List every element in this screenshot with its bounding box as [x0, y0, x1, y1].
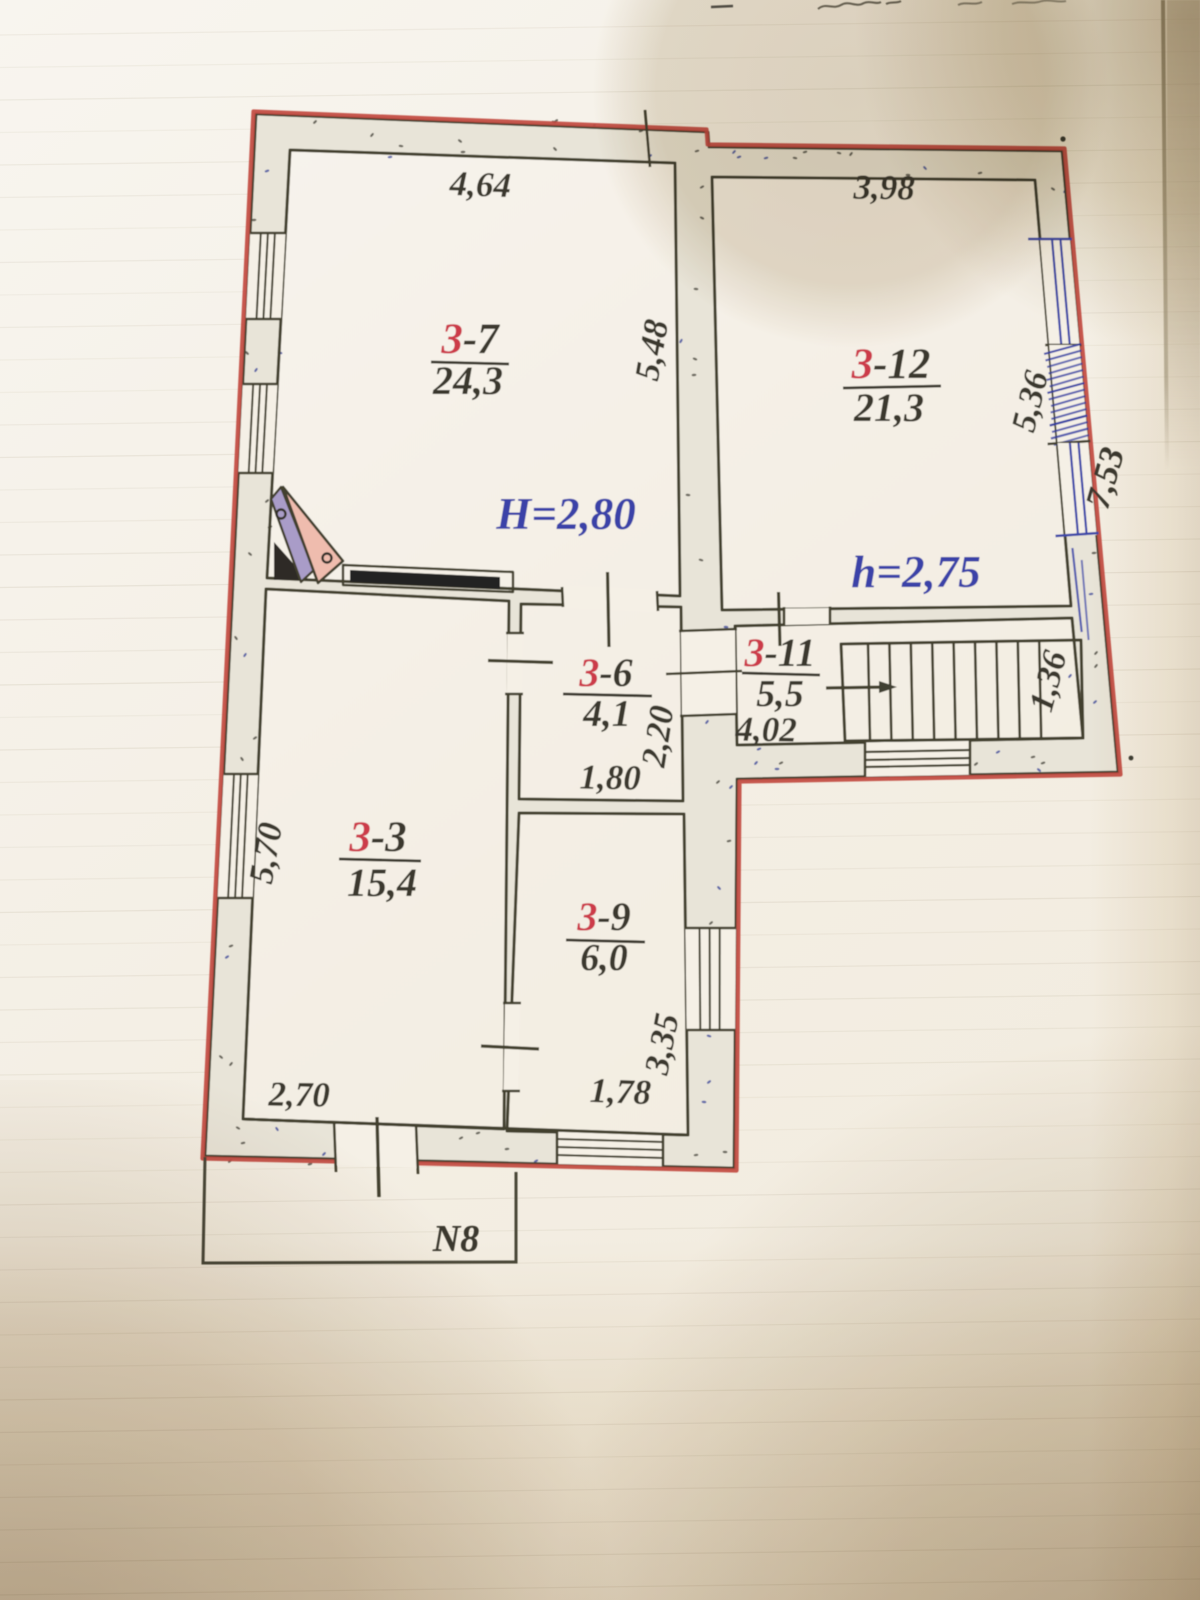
svg-text:4,1: 4,1 — [582, 693, 631, 735]
svg-text:H=2,80: H=2,80 — [495, 489, 635, 539]
svg-text:4,02: 4,02 — [734, 709, 797, 749]
svg-text:3-3: 3-3 — [348, 814, 406, 861]
svg-text:1,80: 1,80 — [579, 757, 641, 797]
svg-text:15,4: 15,4 — [347, 860, 417, 905]
svg-text:3-11: 3-11 — [743, 630, 815, 675]
svg-text:3-6: 3-6 — [578, 650, 632, 695]
svg-text:6,0: 6,0 — [580, 937, 628, 979]
svg-text:3-9: 3-9 — [576, 894, 630, 939]
svg-text:h=2,75: h=2,75 — [851, 547, 980, 597]
svg-text:4,64: 4,64 — [448, 164, 512, 205]
svg-text:24,3: 24,3 — [432, 358, 503, 403]
svg-text:3-7: 3-7 — [440, 316, 500, 363]
svg-text:5,5: 5,5 — [756, 673, 804, 715]
